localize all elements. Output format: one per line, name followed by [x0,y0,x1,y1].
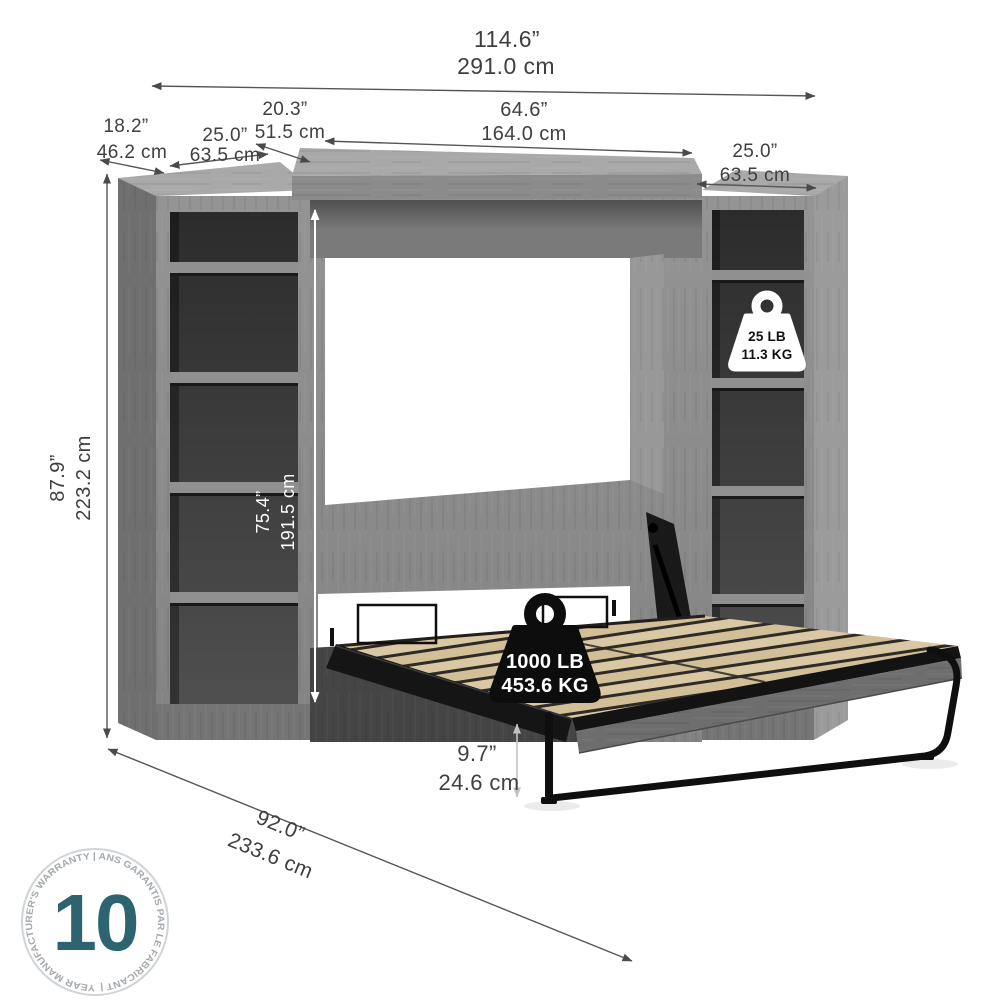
left-bookcase-interior [170,212,298,704]
leg-foot [541,797,557,804]
bed-capacity-lb: 1000 LB [506,651,584,673]
label-cabinet-depth-cm: 51.5 cm [255,122,325,143]
label-interior-height-in: 75.4” [253,490,273,533]
shelf-board-shadow [712,388,804,391]
label-overall-height-cm: 223.2 cm [73,435,95,520]
wood-grain-overlay [630,254,664,494]
shelf-board-shadow [170,603,298,606]
label-left-width-in: 25.0” [202,125,247,146]
dim-line-overall-width [152,86,815,96]
label-side-depth-cm: 46.2 cm [97,142,167,163]
shelf-board-shadow [712,496,804,499]
left-bookcase [118,162,314,740]
shelf-board [712,594,804,604]
wood-grain-overlay [292,148,702,176]
shelf-board-shadow [170,273,298,276]
label-floor-clearance-in: 9.7” [457,741,497,766]
dim-line-open-depth [108,749,632,961]
shelf-board [712,378,804,388]
label-right-width-in: 25.0” [732,141,777,162]
shelf-board-shadow [170,383,298,386]
left-bookcase-interior-shadow [170,212,179,704]
label-interior-height-cm: 191.5 cm [278,473,298,550]
label-overall-width-in: 114.6” [474,26,540,52]
shelf-capacity-lb: 25 LB [748,329,786,344]
leg-foot [918,753,934,760]
frame-pin [330,628,334,646]
shelf-board [170,372,298,383]
shelf-board [712,486,804,496]
wood-grain-overlay [156,704,312,740]
shelf-board [712,270,804,280]
wood-grain-overlay [118,178,156,740]
bed-capacity-kg: 453.6 KG [501,675,588,697]
wood-grain-overlay [118,162,314,196]
shelf-board [170,262,298,273]
label-cabinet-depth-in: 20.3” [262,99,307,120]
wood-grain-overlay [292,174,702,200]
cabinet-opening [325,258,630,505]
warranty-badge: YEAR MANUFACTURER'S WARRANTY | ANS GARAN… [22,849,168,995]
label-left-width-cm: 63.5 cm [190,145,260,166]
shelf-board [170,592,298,603]
label-cabinet-width-in: 64.6” [500,99,548,121]
shelf-board-shadow [712,280,804,283]
label-cabinet-width-cm: 164.0 cm [481,123,566,145]
mechanism-pivot [648,523,658,533]
warranty-years: 10 [53,878,138,967]
label-side-depth-in: 18.2” [103,116,148,137]
label-floor-clearance-cm: 24.6 cm [438,770,519,795]
shelf-capacity-kg: 11.3 KG [742,347,793,362]
product-dimension-diagram: 25 LB 11.3 KG 1000 LB 453.6 KG [0,0,1000,1000]
cabinet-interior-top-shadow [310,200,702,230]
label-overall-height-in: 87.9” [47,454,69,502]
shelf-board-shadow [712,604,804,607]
frame-pin [612,600,616,616]
label-right-width-cm: 63.5 cm [720,165,790,186]
diagram-canvas: 25 LB 11.3 KG 1000 LB 453.6 KG [0,0,1000,1000]
label-overall-width-cm: 291.0 cm [457,53,555,79]
